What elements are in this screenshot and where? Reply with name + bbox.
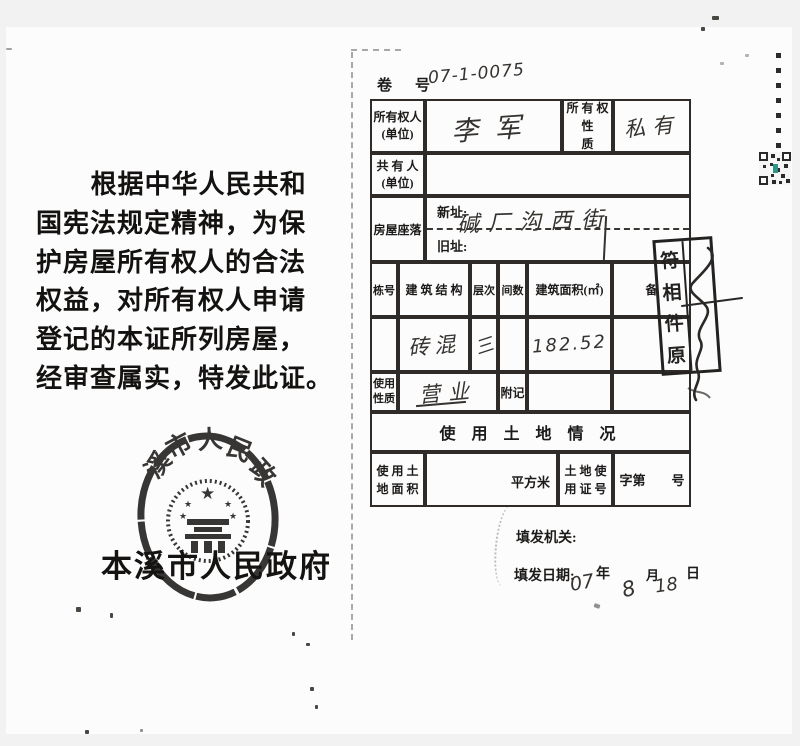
verifier-signature [680,240,750,410]
edge-dot [776,128,781,133]
area-value: 182.52 [531,331,607,357]
svg-text:人: 人 [196,425,223,455]
scan-speck [240,372,243,375]
structure-value-cell: 砖混 [398,317,470,372]
scan-speck [712,16,719,20]
annotation-label: 附记 [500,384,524,401]
area-value-cell: 182.52 [527,317,612,372]
date-day-unit: 日 [686,563,700,583]
scanned-certificate-page: 根据中华人民共和 国宪法规定精神，为保 护房屋所有权人的合法 权益，对所有权人申… [0,0,800,746]
owner-label: 所有权人 (单位) [373,109,421,143]
land-area-value-cell: 平方米 [425,452,558,507]
scan-speck [701,27,705,31]
land-area-unit: 平方米 [511,472,550,491]
scan-speck [292,632,295,636]
land-section-title: 使 用 土 地 情 况 [439,420,621,444]
scan-speck [110,613,113,618]
edge-dot [776,83,781,88]
building-no-header: 栋号 [373,282,395,298]
location-label-cell: 房屋座落 [370,196,425,262]
volume-number-value: 07-1-0075 [427,60,525,88]
usage-label-cell: 使用 性质 [370,372,398,412]
edge-dot [776,143,781,148]
building-no-value-cell [370,317,398,372]
owner-label-cell: 所有权人 (单位) [370,99,425,153]
rooms-header: 间数 [502,282,524,298]
land-cert-no: 字第 号 [619,470,684,489]
co-owner-label-cell: 共 有 人 (单位) [370,153,425,196]
ownership-nature-label-cell: 所 有 权 性 质 [562,99,613,153]
co-owner-label: 共 有 人 (单位) [376,158,418,192]
ownership-nature-label: 所 有 权 性 质 [564,99,611,153]
edge-dot [776,113,781,118]
preamble-line: 登记的本证所列房屋， [36,321,336,360]
scan-speck [593,603,600,609]
floors-value: 三 [471,329,496,359]
edge-dot [776,68,781,73]
land-area-label-cell: 使 用 土 地 面 积 [370,452,425,507]
scan-speck [720,62,724,65]
edge-dot [776,53,781,58]
preamble-line: 根据中华人民共和 [36,166,336,205]
annotation-value-cell [527,372,612,412]
scan-speck [76,607,81,612]
issue-date-label: 填发日期: [514,565,575,585]
structure-header: 建 筑 结 构 [405,281,462,298]
structure-header-cell: 建 筑 结 构 [398,262,470,317]
annotation-label-cell: 附记 [498,372,527,412]
scan-speck [6,48,12,50]
scan-speck [85,730,89,734]
floors-header: 层次 [473,282,495,298]
preamble-line: 国宪法规定精神，为保 [36,205,336,244]
ownership-nature-value-cell: 私有 [613,99,691,153]
co-owner-value-cell [425,153,691,196]
svg-text:★: ★ [184,499,192,509]
preamble-line: 权益，对所有权人申请 [36,282,336,321]
scan-margin-top [0,0,800,27]
preamble-line: 经审查属实，特发此证。 [36,360,336,399]
land-area-label: 使 用 土 地 面 积 [376,462,418,498]
stamp-char: 符 [659,246,680,274]
scan-margin-left [0,0,6,746]
rooms-header-cell: 间数 [498,262,527,317]
edge-dot [776,98,781,103]
date-year-value: 07 [568,570,596,596]
scan-margin-right [792,0,800,746]
svg-text:★: ★ [200,484,215,503]
preamble-line: 护房屋所有权人的合法 [36,244,336,283]
fold-crease-top [351,49,401,51]
rooms-value-cell [498,317,527,372]
area-header-cell: 建筑面积(㎡) [527,262,612,317]
land-cert-label: 土 地 使 用 证 号 [564,462,606,498]
floors-header-cell: 层次 [470,262,498,317]
old-address-label: 旧址: [437,236,467,255]
location-label: 房屋座落 [373,221,421,238]
land-cert-label-cell: 土 地 使 用 证 号 [558,452,613,507]
svg-text:★: ★ [224,499,232,509]
date-month-value: 8 [619,576,638,603]
scan-speck [306,643,310,646]
scan-speck [310,687,314,691]
fold-crease-line [351,52,353,640]
owner-value: 李军 [449,104,538,149]
date-year-unit: 年 [596,563,610,583]
issuing-authority-name: 本溪市人民政府 [101,541,332,586]
ownership-nature-value: 私有 [623,108,682,144]
qr-watermark-icon [759,152,791,185]
scan-speck [315,705,318,709]
scan-margin-bottom [0,734,800,746]
date-day-value: 18 [654,574,680,598]
area-header: 建筑面积(㎡) [536,281,604,298]
land-cert-no-cell: 字第 号 [613,452,691,507]
building-no-header-cell: 栋号 [370,262,398,317]
usage-label: 使用 性质 [373,377,395,407]
issuer-label: 填发机关: [516,527,577,547]
preamble-paragraph: 根据中华人民共和 国宪法规定精神，为保 护房屋所有权人的合法 权益，对所有权人申… [36,166,336,399]
svg-text:★: ★ [179,511,187,521]
scan-speck [745,54,749,57]
volume-number-label: 卷 号 [377,74,434,95]
owner-value-cell: 李军 [425,99,562,153]
scan-speck [140,729,143,732]
usage-value-cell: 营业 [398,372,498,412]
new-address-value: 碱厂沟西街 [456,201,612,238]
floors-value-cell: 三 [470,317,498,372]
svg-text:★: ★ [229,511,237,521]
land-section-cell: 使 用 土 地 情 况 [370,412,691,452]
structure-value: 砖混 [407,327,461,361]
